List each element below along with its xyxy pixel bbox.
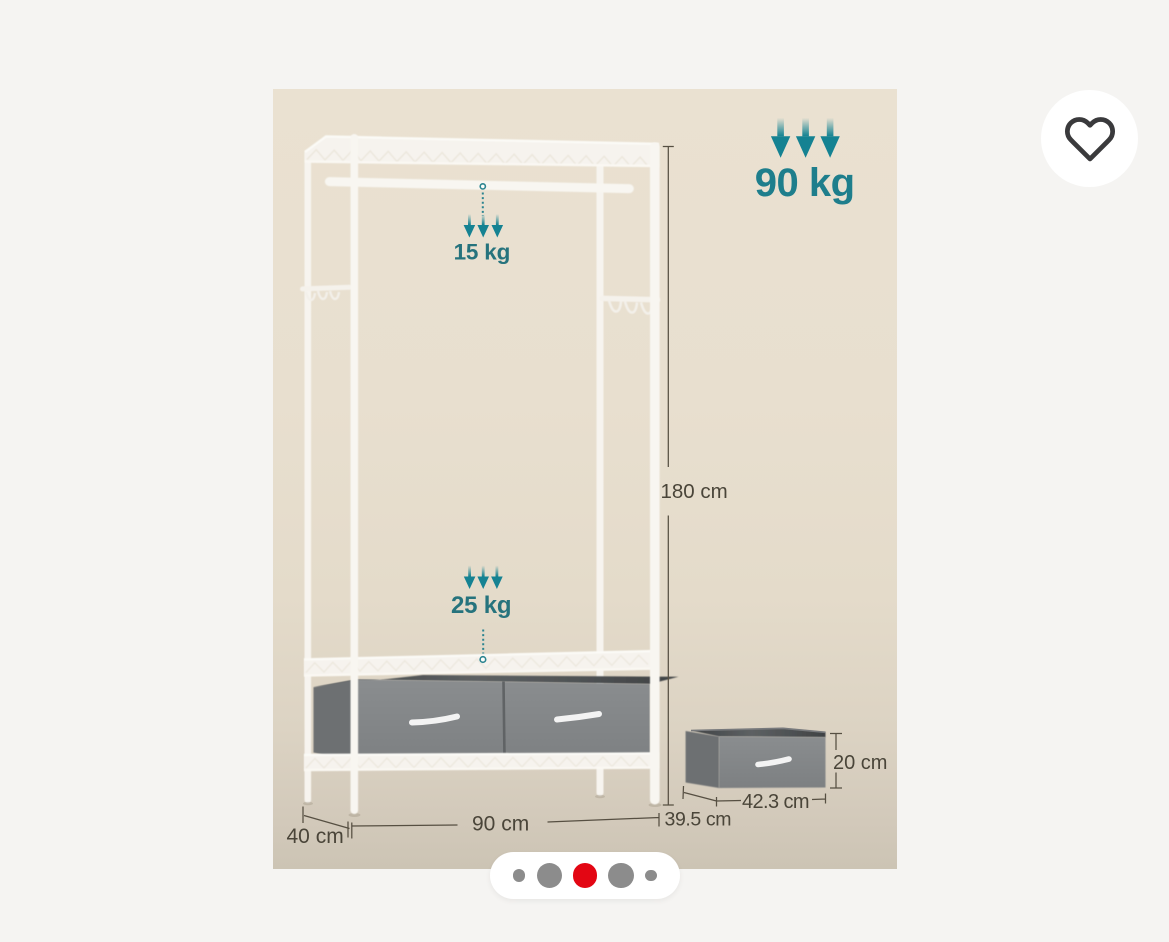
svg-text:40 cm: 40 cm [287,825,344,848]
svg-text:20 cm: 20 cm [833,752,887,774]
svg-text:15 kg: 15 kg [454,240,511,265]
svg-text:90 cm: 90 cm [472,813,529,836]
svg-text:90 kg: 90 kg [755,161,855,205]
svg-text:180 cm: 180 cm [661,480,728,503]
svg-text:42.3 cm: 42.3 cm [742,791,809,813]
svg-text:39.5 cm: 39.5 cm [665,809,732,831]
svg-text:25 kg: 25 kg [451,592,511,619]
